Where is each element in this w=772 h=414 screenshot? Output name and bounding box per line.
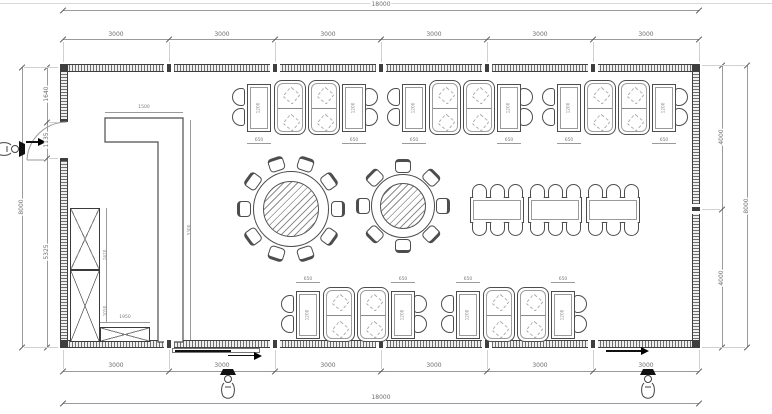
extension-line [49, 158, 58, 159]
window-mullion [591, 64, 595, 72]
low-cabinet [100, 327, 150, 342]
booth-sofa [618, 80, 650, 135]
booth-seat [626, 86, 644, 104]
dim-label-top-segment: 3000 [107, 32, 124, 38]
dim-line-counter-top [105, 112, 183, 113]
extension-line [487, 350, 488, 369]
booth-seat [592, 113, 610, 131]
dim-line-left-inner [47, 67, 48, 347]
side-chair [520, 108, 533, 126]
side-chair [675, 108, 688, 126]
extension-line [63, 350, 64, 369]
mini-dim-label: 650 [660, 138, 669, 143]
dim-label-top-segment: 3000 [637, 32, 654, 38]
booth-sofa [429, 80, 461, 135]
window-mullion [379, 64, 383, 72]
booth-table-label: 1200 [352, 103, 356, 114]
sliding-door-panel [175, 350, 231, 352]
banquet-chair [548, 222, 563, 236]
banquet-chair [472, 222, 487, 236]
round-table-chair [395, 239, 411, 253]
banquet-table-segment [470, 197, 524, 223]
booth-seat [331, 293, 349, 311]
dim-label-bottom-overall: 18000 [370, 395, 391, 401]
dim-label-bottom-segment: 3000 [213, 363, 230, 369]
booth-table-label: 1200 [257, 103, 261, 114]
person-figure-icon [0, 138, 28, 160]
booth-seat [471, 113, 489, 131]
booth-seat [525, 320, 543, 338]
mini-dim-line [296, 282, 320, 283]
banquet-table-segment [528, 197, 582, 223]
banquet-chair [530, 222, 545, 236]
mini-dim-line [652, 143, 676, 144]
dim-label-bottom-segment: 3000 [319, 363, 336, 369]
booth-divider [277, 108, 303, 109]
round-table-chair [296, 245, 316, 263]
bar-counter [100, 110, 200, 346]
door-arrow-icon [641, 347, 649, 355]
banquet-chair [548, 184, 563, 198]
booth-seat [491, 293, 509, 311]
wall-corner [60, 64, 68, 72]
round-table-chair [237, 201, 251, 217]
extension-line [63, 42, 64, 62]
dim-label-left-segment: 5325 [44, 243, 50, 260]
booth-divider [587, 108, 613, 109]
banquet-chair [606, 222, 621, 236]
mini-dim-label: 650 [565, 138, 574, 143]
mini-dim-line [342, 143, 366, 144]
booth-table-label: 1200 [567, 103, 571, 114]
extension-line [49, 122, 58, 123]
window-mullion [167, 64, 171, 72]
mini-dim-label: 650 [304, 277, 313, 282]
door-arrow-shaft [606, 350, 642, 352]
dim-label-top-segment: 3000 [531, 32, 548, 38]
banquet-chair [566, 184, 581, 198]
extension-line [702, 65, 745, 66]
banquet-chair [530, 184, 545, 198]
dim-tick [696, 7, 702, 13]
mini-dim-label: 650 [464, 277, 473, 282]
window-mullion [273, 64, 277, 72]
side-chair [675, 88, 688, 106]
mini-dim-line [402, 143, 426, 144]
extension-line [24, 67, 58, 68]
booth-seat [437, 113, 455, 131]
window-mullion [591, 340, 595, 348]
dim-label-bottom-segment: 3000 [107, 363, 124, 369]
booth-seat [592, 86, 610, 104]
side-chair [365, 108, 378, 126]
extension-line [487, 42, 488, 62]
side-chair [387, 108, 400, 126]
mini-dim-line [391, 282, 415, 283]
banquet-chair [624, 222, 639, 236]
booth-table-label: 1200 [306, 310, 310, 321]
booth-divider [311, 108, 337, 109]
mini-dim-label: 650 [559, 277, 568, 282]
window-mullion [167, 340, 171, 348]
side-chair [542, 88, 555, 106]
mini-dim-label: 650 [410, 138, 419, 143]
lazy-susan [380, 183, 426, 229]
mini-dim-line [557, 143, 581, 144]
dim-label-top-overall: 18000 [370, 2, 391, 8]
side-chair [387, 88, 400, 106]
tall-cabinet-upper [70, 208, 100, 270]
side-chair [232, 108, 245, 126]
booth-seat [316, 113, 334, 131]
booth-divider [326, 315, 352, 316]
banquet-chair [588, 184, 603, 198]
extension-line [381, 350, 382, 369]
booth-sofa [584, 80, 616, 135]
booth-seat [282, 113, 300, 131]
booth-table-label: 1200 [662, 103, 666, 114]
booth-divider [486, 315, 512, 316]
booth-sofa [517, 287, 549, 342]
extension-line [24, 347, 58, 348]
banquet-chair [490, 222, 505, 236]
booth-seat [365, 320, 383, 338]
booth-seat [525, 293, 543, 311]
lazy-susan [263, 181, 319, 237]
dim-label-left-outer: 8000 [19, 198, 25, 215]
round-table-chair [395, 159, 411, 173]
booth-divider [432, 108, 458, 109]
side-chair [281, 315, 294, 333]
side-chair [281, 295, 294, 313]
side-chair [232, 88, 245, 106]
dim-line-bottom-overall [63, 403, 699, 404]
extension-line [169, 350, 170, 369]
extension-line [702, 347, 745, 348]
round-table-chair [267, 245, 287, 263]
window-mullion [692, 207, 700, 211]
booth-divider [360, 315, 386, 316]
dim-label-top-segment: 3000 [425, 32, 442, 38]
dim-label-left-segment: 1640 [44, 85, 50, 102]
booth-seat [316, 86, 334, 104]
dim-label-counter-top: 1500 [138, 105, 149, 110]
side-chair [574, 315, 587, 333]
dim-label-top-segment: 3000 [319, 32, 336, 38]
banquet-chair [472, 184, 487, 198]
person-figure-icon [217, 366, 239, 400]
window-mullion [273, 340, 277, 348]
side-chair [542, 108, 555, 126]
booth-table-label: 1200 [412, 103, 416, 114]
booth-seat [437, 86, 455, 104]
window-mullion [485, 64, 489, 72]
banquet-table-segment [586, 197, 640, 223]
round-table-chair [356, 198, 370, 214]
round-table-chair [296, 155, 316, 173]
left-wall [60, 64, 68, 348]
extension-line [699, 42, 700, 62]
dim-tick [696, 400, 702, 406]
banquet-chair [490, 184, 505, 198]
mini-dim-line [456, 282, 480, 283]
extension-line [593, 42, 594, 62]
dim-label-cabinet-lower: 1050 [104, 306, 108, 317]
side-chair [441, 295, 454, 313]
booth-seat [331, 320, 349, 338]
mini-dim-label: 650 [350, 138, 359, 143]
side-chair [441, 315, 454, 333]
dim-label-top-segment: 3000 [213, 32, 230, 38]
extension-line [593, 350, 594, 369]
door-arrow-shaft [228, 355, 254, 356]
round-table-chair [436, 198, 450, 214]
booth-sofa [357, 287, 389, 342]
dim-label-bottom-segment: 3000 [637, 363, 654, 369]
booth-table-label: 1200 [507, 103, 511, 114]
person-figure-icon [637, 366, 659, 400]
dim-label-low-cabinet: 1950 [119, 315, 130, 320]
booth-seat [491, 320, 509, 338]
mini-dim-label: 650 [399, 277, 408, 282]
wall-corner [60, 340, 68, 348]
dim-line-top-overall [63, 10, 699, 11]
mini-dim-label: 650 [255, 138, 264, 143]
dim-label-left-segment: 1135 [44, 131, 50, 148]
booth-sofa [308, 80, 340, 135]
booth-seat [365, 293, 383, 311]
dim-label-right-segment: 4000 [719, 269, 725, 286]
dim-label-bottom-segment: 3000 [425, 363, 442, 369]
dim-line-low-cabinet [100, 322, 150, 323]
mini-dim-line [551, 282, 575, 283]
wall-corner [692, 64, 700, 72]
extension-line [169, 42, 170, 62]
dim-label-right-segment: 4000 [719, 128, 725, 145]
booth-divider [466, 108, 492, 109]
booth-seat [626, 113, 644, 131]
booth-table-label: 1200 [401, 310, 405, 321]
mini-dim-line [497, 143, 521, 144]
dim-tick [696, 368, 702, 374]
extension-line [275, 350, 276, 369]
dim-label-cabinet-upper: 2420 [104, 250, 108, 261]
banquet-chair [606, 184, 621, 198]
booth-divider [520, 315, 546, 316]
banquet-chair [588, 222, 603, 236]
extension-line [702, 209, 720, 210]
wall-corner [692, 340, 700, 348]
banquet-chair [508, 222, 523, 236]
side-chair [574, 295, 587, 313]
extension-line [381, 42, 382, 62]
door-arrow-icon [254, 352, 262, 360]
floor-plan-canvas: 18000 18000 8000 8000 [0, 0, 772, 414]
mini-dim-line [247, 143, 271, 144]
dim-label-right-outer: 8000 [744, 197, 750, 214]
tall-cabinet-lower [70, 270, 100, 342]
banquet-chair [566, 222, 581, 236]
dim-label-counter-length: 5300 [188, 225, 192, 236]
banquet-chair [508, 184, 523, 198]
booth-sofa [463, 80, 495, 135]
booth-table-label: 1200 [561, 310, 565, 321]
side-chair [365, 88, 378, 106]
banquet-chair [624, 184, 639, 198]
round-table-chair [331, 201, 345, 217]
extension-line [699, 350, 700, 369]
booth-table-label: 1200 [466, 310, 470, 321]
booth-sofa [323, 287, 355, 342]
booth-seat [471, 86, 489, 104]
booth-sofa [274, 80, 306, 135]
side-chair [414, 295, 427, 313]
side-chair [414, 315, 427, 333]
side-chair [520, 88, 533, 106]
booth-seat [282, 86, 300, 104]
mini-dim-label: 650 [505, 138, 514, 143]
dim-label-bottom-segment: 3000 [531, 363, 548, 369]
booth-sofa [483, 287, 515, 342]
booth-divider [621, 108, 647, 109]
extension-line [275, 42, 276, 62]
